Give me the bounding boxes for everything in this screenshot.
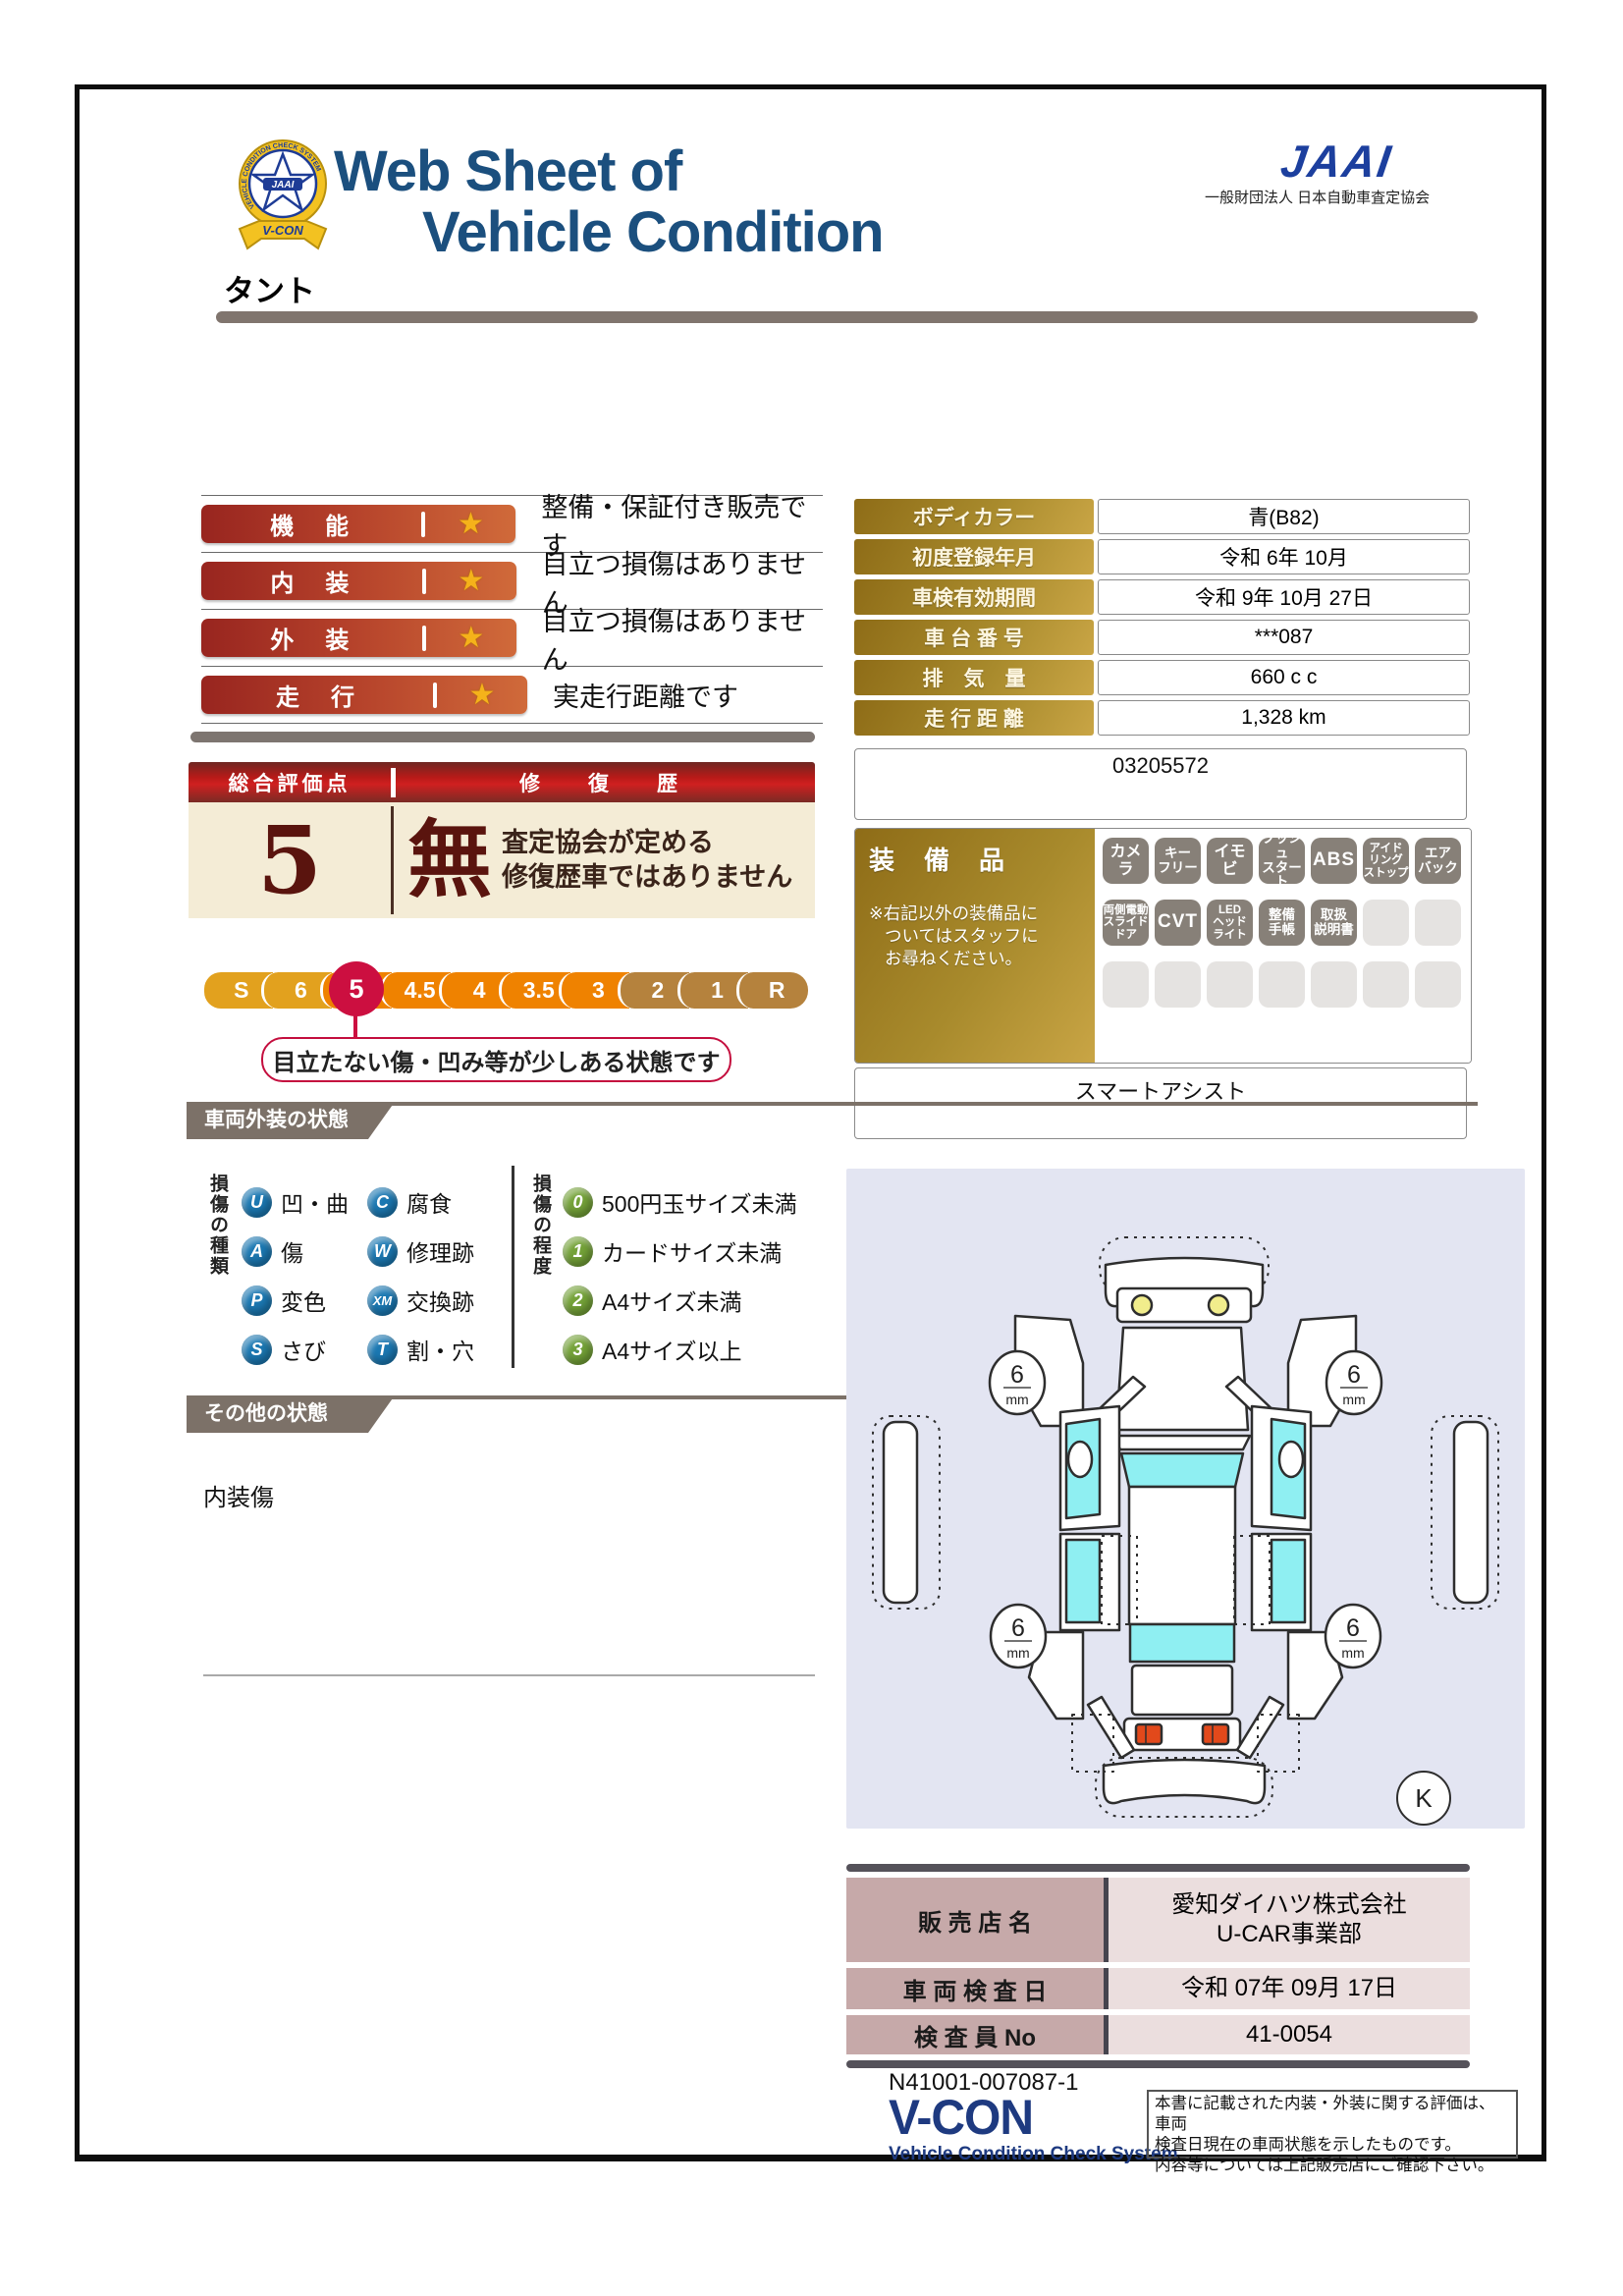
- legend-item-degree-0: 0 500円玉サイズ未満: [563, 1177, 797, 1227]
- damage-kind-header: 損傷の種類: [204, 1174, 231, 1390]
- legend-item-repair-mark: W 修理跡: [367, 1227, 514, 1276]
- windshield: [1121, 1453, 1243, 1487]
- overall-header-right: 修 復 歴: [396, 768, 815, 797]
- table-bottom-bar: [846, 2060, 1470, 2068]
- scale-segment-R: R: [736, 972, 808, 1009]
- rating-badge: 内 装 ★: [201, 562, 516, 600]
- damage-code-icon: XM: [367, 1285, 398, 1316]
- equipment-chip-airbag: エア バック: [1415, 838, 1461, 884]
- degree-code-icon: 1: [563, 1236, 593, 1267]
- equipment-chip-empty: [1311, 961, 1357, 1008]
- equipment-chip-empty: [1415, 961, 1461, 1008]
- vcon-badge-logo: VEHICLE CONDITION CHECK SYSTEM JAAI V-CO…: [234, 138, 332, 258]
- legend-item-dent: U 凹・曲: [242, 1177, 367, 1227]
- dealer-value-line1: 愛知ダイハツ株式会社: [1171, 1890, 1407, 1920]
- legend-label: A4サイズ未満: [602, 1284, 741, 1317]
- page-title-line1: Web Sheet of: [334, 138, 681, 204]
- spec-value: 青(B82): [1098, 499, 1470, 534]
- rating-label: 内 装: [201, 564, 422, 598]
- overall-score-value: 5: [257, 814, 322, 907]
- repair-note-line2: 修復歴車ではありません: [502, 862, 792, 892]
- damage-kinds-legend: U 凹・曲 C 腐食 A 傷 W 修理跡 P 変色 XM 交換跡 S さび T: [242, 1177, 514, 1374]
- dealer-label: 販 売 店 名: [846, 1878, 1109, 1962]
- rating-label: 外 装: [201, 621, 422, 655]
- score-scale: S 6 5 4.5 4 3.5 3 2 1 R 5 目立たない傷・凹み等が少しあ…: [204, 972, 808, 1085]
- damage-code-icon: T: [367, 1335, 398, 1365]
- car-diagram-svg: 6 mm 6 mm 6 mm 6 mm K: [846, 1169, 1525, 1829]
- dealer-row-inspection-date: 車 両 検 査 日 令和 07年 09月 17日: [846, 1968, 1470, 2009]
- equipment-chip-empty: [1363, 900, 1409, 946]
- badge-ribbon-text: V-CON: [262, 223, 303, 238]
- legend-label: 修理跡: [406, 1234, 474, 1268]
- star-icon: ★: [425, 507, 515, 541]
- spec-label: 走 行 距 離: [854, 700, 1094, 736]
- badge-center-text: JAAI: [272, 180, 295, 191]
- legend-label: さび: [281, 1333, 326, 1366]
- legend-item-discoloration: P 変色: [242, 1276, 367, 1325]
- vehicle-name: タント: [224, 266, 315, 310]
- spec-label: 初度登録年月: [854, 539, 1094, 574]
- equipment-chip-led-headlights: LED ヘッド ライト: [1207, 900, 1253, 946]
- star-icon: ★: [426, 564, 516, 598]
- rear-glass: [1130, 1624, 1234, 1662]
- spec-label: ボディカラー: [854, 499, 1094, 534]
- equipment-chip-empty: [1259, 961, 1305, 1008]
- legend-item-rust: S さび: [242, 1325, 367, 1374]
- equipment-chip-keyfree: キー フリー: [1155, 838, 1201, 884]
- equipment-chip-empty: [1363, 961, 1409, 1008]
- equipment-chip-empty: [1155, 961, 1201, 1008]
- spec-value: ***087: [1098, 620, 1470, 655]
- star-icon: ★: [426, 621, 516, 655]
- legend-item-degree-1: 1 カードサイズ未満: [563, 1227, 797, 1276]
- taillight-left-icon: [1136, 1724, 1162, 1744]
- exterior-section-title: 車両外装の状態: [187, 1102, 395, 1139]
- dealer-value: 41-0054: [1109, 2015, 1470, 2054]
- legend-label: A4サイズ以上: [602, 1333, 741, 1366]
- exterior-section-header: 車両外装の状態: [187, 1102, 1478, 1139]
- star-icon: ★: [437, 678, 527, 712]
- rating-badge: 外 装 ★: [201, 619, 516, 657]
- roof: [1129, 1487, 1235, 1624]
- dealer-value-line1: 41-0054: [1246, 2020, 1332, 2050]
- tire-tread-value: 6: [1347, 1361, 1361, 1389]
- spec-row-body-color: ボディカラー 青(B82): [854, 499, 1470, 534]
- dealer-value: 令和 07年 09月 17日: [1109, 1968, 1470, 2009]
- tailgate: [1132, 1666, 1232, 1715]
- spec-value: 1,328 km: [1098, 700, 1470, 736]
- equipment-panel: 装 備 品 ※右記以外の装備品に ついてはスタッフに お尋ねください。 カメラ …: [854, 828, 1472, 1064]
- equipment-chip-camera: カメラ: [1103, 838, 1149, 884]
- equipment-note-line1: ※右記以外の装備品に: [869, 902, 1085, 925]
- tire-tread-unit: mm: [1342, 1392, 1365, 1407]
- legend-label: 変色: [281, 1284, 326, 1317]
- equipment-chip-immobilizer: イモビ: [1207, 838, 1253, 884]
- legend-item-degree-3: 3 A4サイズ以上: [563, 1325, 797, 1374]
- legend-label: 腐食: [406, 1185, 452, 1219]
- divider-bar-mid: [190, 732, 815, 742]
- selected-score-marker: 5: [329, 961, 384, 1016]
- damage-code-icon: U: [242, 1187, 272, 1218]
- legend-label: 500円玉サイズ未満: [602, 1185, 797, 1219]
- legend-label: 凹・曲: [281, 1185, 349, 1219]
- equipment-note-line2: ついてはスタッフに: [869, 925, 1085, 948]
- dealer-label: 検 査 員 No: [846, 2015, 1109, 2054]
- dealer-table: 販 売 店 名 愛知ダイハツ株式会社 U-CAR事業部 車 両 検 査 日 令和…: [846, 1864, 1470, 2068]
- other-condition-note: 内装傷: [203, 1478, 274, 1512]
- page-title-line2: Vehicle Condition: [422, 199, 884, 265]
- overall-header-left: 総合評価点: [189, 768, 391, 797]
- repair-history-cell: 無 査定協会が定める 修復歴車ではありません: [394, 802, 815, 918]
- tire-tread-unit: mm: [1006, 1645, 1029, 1661]
- legend-item-crack-hole: T 割・穴: [367, 1325, 514, 1374]
- legend-label: カードサイズ未満: [602, 1234, 782, 1268]
- spec-row-displacement: 排 気 量 660 c c: [854, 660, 1470, 695]
- taillight-right-icon: [1203, 1724, 1228, 1744]
- disclaimer-box: 本書に記載された内装・外装に関する評価は、車両 検査日現在の車両状態を示したもの…: [1147, 2090, 1518, 2159]
- equipment-chip-owners-manual: 取扱 説明書: [1311, 900, 1357, 946]
- rating-label: 機 能: [201, 507, 421, 541]
- rating-label: 走 行: [201, 678, 433, 712]
- overall-score-cell: 5: [189, 802, 391, 918]
- headlight-left-icon: [1132, 1295, 1152, 1315]
- equipment-label-cell: 装 備 品 ※右記以外の装備品に ついてはスタッフに お尋ねください。: [855, 829, 1095, 1063]
- equipment-chip-abs: ABS: [1311, 838, 1357, 884]
- rating-desc: 実走行距離です: [553, 676, 738, 714]
- dealer-value-line1: 令和 07年 09月 17日: [1181, 1974, 1397, 2003]
- dealer-row-inspector-no: 検 査 員 No 41-0054: [846, 2015, 1470, 2054]
- car-side-right: [1226, 1316, 1498, 1772]
- spec-row-mileage: 走 行 距 離 1,328 km: [854, 700, 1470, 736]
- vcon-logo: V-CON: [889, 2090, 1033, 2147]
- equipment-title: 装 備 品: [869, 841, 1085, 877]
- equipment-note-line3: お尋ねください。: [869, 948, 1085, 970]
- jaai-org-name: 一般財団法人 日本自動車査定協会: [1205, 187, 1430, 207]
- repair-history-note: 査定協会が定める 修復歴車ではありません: [502, 826, 792, 895]
- spec-label: 車 台 番 号: [854, 620, 1094, 655]
- tire-tread-value: 6: [1346, 1614, 1360, 1642]
- legend-label: 交換跡: [406, 1284, 474, 1317]
- equipment-chip-maintenance-book: 整備 手帳: [1259, 900, 1305, 946]
- damage-code-icon: W: [367, 1236, 398, 1267]
- rating-desc: 目立つ損傷はありません: [542, 600, 823, 677]
- equipment-chip-idling-stop: アイド リング ストップ: [1363, 838, 1409, 884]
- dealer-value-line2: U-CAR事業部: [1217, 1920, 1362, 1949]
- tire-tread-value: 6: [1010, 1361, 1024, 1389]
- horizontal-rule: [203, 1674, 815, 1676]
- damage-code-icon: A: [242, 1236, 272, 1267]
- spec-value: 令和 6年 10月: [1098, 539, 1470, 574]
- condition-sheet: VEHICLE CONDITION CHECK SYSTEM JAAI V-CO…: [75, 84, 1546, 2161]
- legend-item-corrosion: C 腐食: [367, 1177, 514, 1227]
- equipment-chip-empty: [1207, 961, 1253, 1008]
- disclaimer-line2: 検査日現在の車両状態を示したものです。: [1155, 2135, 1510, 2156]
- vcon-subtitle: Vehicle Condition Check System: [889, 2144, 1178, 2165]
- legend-item-degree-2: 2 A4サイズ未満: [563, 1276, 797, 1325]
- reference-number-box: 03205572: [854, 748, 1467, 820]
- car-damage-diagram: 6 mm 6 mm 6 mm 6 mm K: [846, 1169, 1525, 1829]
- tire-tread-value: 6: [1011, 1614, 1025, 1642]
- degree-code-icon: 3: [563, 1335, 593, 1365]
- equipment-chip-power-slide-doors: 両側電動 スライド ドア: [1103, 900, 1149, 946]
- jaai-logo: JAAI: [1277, 135, 1395, 188]
- repair-note-line1: 査定協会が定める: [502, 828, 714, 857]
- legend-item-replacement-mark: XM 交換跡: [367, 1276, 514, 1325]
- door-handle: [1068, 1442, 1092, 1477]
- equipment-grid: カメラ キー フリー イモビ プッシュ スタート ABS アイド リング ストッ…: [1095, 829, 1471, 1063]
- other-section-title: その他の状態: [187, 1395, 395, 1433]
- rating-badge: 走 行 ★: [201, 676, 527, 714]
- legend-label: 割・穴: [406, 1333, 474, 1366]
- equipment-chip-push-start: プッシュ スタート: [1259, 838, 1305, 884]
- overall-body: 5 無 査定協会が定める 修復歴車ではありません: [189, 802, 815, 918]
- disclaimer-line1: 本書に記載された内装・外装に関する評価は、車両: [1155, 2094, 1510, 2135]
- degree-code-icon: 0: [563, 1187, 593, 1218]
- equipment-chip-empty: [1103, 961, 1149, 1008]
- page: { "header": { "title_line1": "Web Sheet …: [0, 0, 1623, 2296]
- spec-label: 排 気 量: [854, 660, 1094, 695]
- spec-row-first-registration: 初度登録年月 令和 6年 10月: [854, 539, 1470, 574]
- side-sill: [884, 1422, 917, 1603]
- dealer-label: 車 両 検 査 日: [846, 1968, 1109, 2009]
- legend-label: 傷: [281, 1234, 303, 1268]
- rear-bumper: [1104, 1760, 1265, 1803]
- spec-row-inspection-validity: 車検有効期間 令和 9年 10月 27日: [854, 579, 1470, 615]
- tire-tread-unit: mm: [1341, 1645, 1364, 1661]
- rating-badge: 機 能 ★: [201, 505, 515, 543]
- tire-tread-unit: mm: [1005, 1392, 1028, 1407]
- car-side-left: [873, 1316, 1145, 1772]
- cowl: [1113, 1436, 1250, 1449]
- overall-score-panel: 総合評価点 修 復 歴 5 無 査定協会が定める 修復歴車ではありません: [189, 762, 815, 918]
- ratings-list: 機 能 ★ 整備・保証付き販売です 内 装 ★ 目立つ損傷はありません 外 装 …: [201, 495, 823, 724]
- degree-code-icon: 2: [563, 1285, 593, 1316]
- spec-value: 令和 9年 10月 27日: [1098, 579, 1470, 615]
- rating-row-exterior: 外 装 ★ 目立つ損傷はありません: [201, 609, 823, 666]
- dealer-value: 愛知ダイハツ株式会社 U-CAR事業部: [1109, 1878, 1470, 1962]
- headlight-right-icon: [1209, 1295, 1228, 1315]
- divider-bar-top: [216, 311, 1478, 323]
- spec-row-chassis-number: 車 台 番 号 ***087: [854, 620, 1470, 655]
- damage-degrees-legend: 0 500円玉サイズ未満 1 カードサイズ未満 2 A4サイズ未満 3 A4サイ…: [563, 1177, 797, 1374]
- scale-bar: S 6 5 4.5 4 3.5 3 2 1 R: [204, 972, 808, 1009]
- equipment-chip-cvt: CVT: [1155, 900, 1201, 946]
- corner-marker: K: [1415, 1783, 1433, 1813]
- dealer-row-shop-name: 販 売 店 名 愛知ダイハツ株式会社 U-CAR事業部: [846, 1878, 1470, 1962]
- damage-code-icon: S: [242, 1335, 272, 1365]
- equipment-chip-empty: [1415, 900, 1461, 946]
- legend-item-scratch: A 傷: [242, 1227, 367, 1276]
- repair-history-flag: 無: [407, 820, 492, 901]
- spec-value: 660 c c: [1098, 660, 1470, 695]
- rear-door-window: [1066, 1540, 1100, 1622]
- selected-score-pointer: [353, 1014, 357, 1039]
- damage-code-icon: P: [242, 1285, 272, 1316]
- disclaimer-line3: 内容等については上記販売店にご確認下さい。: [1155, 2156, 1510, 2176]
- score-callout: 目立たない傷・凹み等が少しある状態です: [261, 1037, 731, 1082]
- overall-header: 総合評価点 修 復 歴: [189, 762, 815, 802]
- spec-label: 車検有効期間: [854, 579, 1094, 615]
- damage-degree-header: 損傷の程度: [527, 1174, 554, 1390]
- damage-code-icon: C: [367, 1187, 398, 1218]
- table-top-bar: [846, 1864, 1470, 1872]
- equipment-note: ※右記以外の装備品に ついてはスタッフに お尋ねください。: [869, 902, 1085, 969]
- vcon-badge-icon: VEHICLE CONDITION CHECK SYSTEM JAAI V-CO…: [234, 138, 332, 258]
- legend-divider: [512, 1166, 514, 1368]
